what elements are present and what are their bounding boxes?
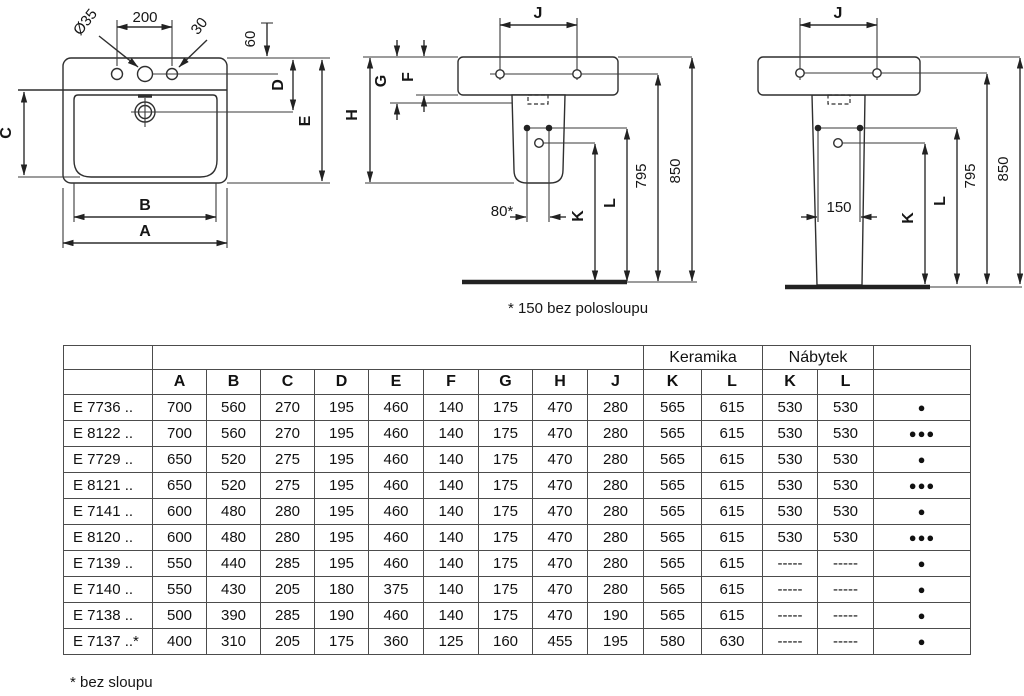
dimension-value-cell: 195 — [315, 551, 369, 577]
dimension-value-cell: 565 — [644, 499, 702, 525]
dim-A: A — [139, 223, 151, 240]
column-header-G-6: G — [479, 370, 533, 395]
dim-D: D — [270, 79, 287, 91]
mounting-hole — [573, 70, 581, 78]
fixing-point — [546, 125, 553, 132]
availability-dots-cell: ● — [874, 499, 971, 525]
dimension-value-cell: 470 — [533, 551, 588, 577]
column-header-row: ABCDEFGHJKLKL — [64, 370, 971, 395]
dimension-value-cell: 530 — [818, 421, 874, 447]
empty-header-cell — [153, 346, 644, 370]
dimension-value-cell: 560 — [207, 421, 261, 447]
dimension-value-cell: 615 — [702, 473, 763, 499]
column-header-K-11: K — [763, 370, 818, 395]
column-header-L-12: L — [818, 370, 874, 395]
dimension-value-cell: 560 — [207, 395, 261, 421]
dimension-value-cell: 550 — [153, 577, 207, 603]
dimension-value-cell: 360 — [369, 629, 424, 655]
dimension-value-cell: 195 — [315, 395, 369, 421]
mounting-hole — [873, 69, 881, 77]
fixing-point — [815, 125, 822, 132]
column-header-B-1: B — [207, 370, 261, 395]
pedestal — [812, 95, 865, 285]
dimension-value-cell: ----- — [818, 551, 874, 577]
dimension-value-cell: 470 — [533, 603, 588, 629]
dim-60: 60 — [242, 31, 259, 48]
dimension-value-cell: 195 — [315, 473, 369, 499]
dim-80: 80* — [491, 203, 514, 220]
dimension-value-cell: 615 — [702, 603, 763, 629]
dimension-value-cell: 205 — [261, 629, 315, 655]
dimension-value-cell: 140 — [424, 551, 479, 577]
dimension-value-cell: 520 — [207, 473, 261, 499]
dimension-value-cell: 470 — [533, 447, 588, 473]
dimension-value-cell: 615 — [702, 499, 763, 525]
side-view-pedestal-diagram: J 150 K L 795 850 — [700, 0, 1024, 300]
dimension-value-cell: 480 — [207, 499, 261, 525]
dimension-value-cell: 280 — [588, 473, 644, 499]
dimension-value-cell: 565 — [644, 447, 702, 473]
dimension-value-cell: 530 — [763, 395, 818, 421]
dimension-value-cell: 470 — [533, 421, 588, 447]
dimension-value-cell: 175 — [479, 551, 533, 577]
dimension-value-cell: 140 — [424, 577, 479, 603]
dimension-value-cell: 530 — [763, 473, 818, 499]
keramika-group-header: Keramika — [644, 346, 763, 370]
dimension-value-cell: 470 — [533, 473, 588, 499]
dimension-value-cell: 140 — [424, 525, 479, 551]
model-number-cell: E 7141 .. — [64, 499, 153, 525]
nabytek-group-header: Nábytek — [763, 346, 874, 370]
dimension-value-cell: ----- — [763, 551, 818, 577]
dim-K: K — [570, 210, 587, 222]
dimension-value-cell: 140 — [424, 447, 479, 473]
mounting-hole — [496, 70, 504, 78]
dimension-value-cell: 175 — [315, 629, 369, 655]
dimension-value-cell: 530 — [818, 473, 874, 499]
fixing-point — [524, 125, 531, 132]
dimension-value-cell: 600 — [153, 525, 207, 551]
fixing-point — [857, 125, 864, 132]
dimension-value-cell: 470 — [533, 525, 588, 551]
dim-150: 150 — [826, 199, 851, 216]
dimension-table: Keramika Nábytek ABCDEFGHJKLKL E 7736 ..… — [63, 345, 971, 655]
column-header-D-3: D — [315, 370, 369, 395]
table-row: E 7137 ..*400310205175360125160455195580… — [64, 629, 971, 655]
dimension-value-cell: ----- — [763, 629, 818, 655]
table-row: E 8120 ..6004802801954601401754702805656… — [64, 525, 971, 551]
dimension-value-cell: 125 — [424, 629, 479, 655]
dimension-value-cell: 530 — [763, 525, 818, 551]
dimension-value-cell: 530 — [818, 525, 874, 551]
dimension-value-cell: 565 — [644, 577, 702, 603]
dimension-value-cell: 700 — [153, 421, 207, 447]
dim-30: 30 — [188, 14, 212, 38]
dimension-value-cell: 565 — [644, 551, 702, 577]
dimension-value-cell: 275 — [261, 447, 315, 473]
dimension-value-cell: 480 — [207, 525, 261, 551]
empty-header-cell — [64, 370, 153, 395]
tap-hole-center — [138, 67, 153, 82]
dimension-value-cell: 615 — [702, 447, 763, 473]
empty-header-cell — [874, 346, 971, 370]
spec-table-body: E 7736 ..7005602701954601401754702805656… — [64, 395, 971, 655]
dimension-value-cell: ----- — [763, 603, 818, 629]
dimension-value-cell: 175 — [479, 525, 533, 551]
dimension-value-cell: 140 — [424, 499, 479, 525]
dimension-value-cell: 195 — [588, 629, 644, 655]
dimension-value-cell: 285 — [261, 603, 315, 629]
dimension-value-cell: 375 — [369, 577, 424, 603]
dimension-value-cell: 630 — [702, 629, 763, 655]
dim-L: L — [602, 198, 619, 208]
dimension-value-cell: 205 — [261, 577, 315, 603]
availability-dots-cell: ● — [874, 395, 971, 421]
column-header-H-7: H — [533, 370, 588, 395]
dimension-value-cell: 400 — [153, 629, 207, 655]
dimension-value-cell: 270 — [261, 421, 315, 447]
dim-dia35: Ø35 — [70, 6, 101, 39]
dim-850: 850 — [667, 158, 684, 183]
dim-C: C — [0, 127, 15, 139]
availability-dots-cell: ● — [874, 551, 971, 577]
dimension-value-cell: 190 — [588, 603, 644, 629]
dimension-value-cell: 460 — [369, 499, 424, 525]
dimension-value-cell: 310 — [207, 629, 261, 655]
dimension-value-cell: 520 — [207, 447, 261, 473]
dimension-value-cell: 615 — [702, 577, 763, 603]
dimension-value-cell: 615 — [702, 395, 763, 421]
dimension-value-cell: 280 — [261, 525, 315, 551]
dimension-value-cell: 190 — [315, 603, 369, 629]
washbasin-spec-sheet: 200 Ø35 30 60 D E C B A — [0, 0, 1024, 696]
table-row: E 7729 ..6505202751954601401754702805656… — [64, 447, 971, 473]
dim-G: G — [373, 75, 390, 87]
tap-hole-left — [112, 69, 123, 80]
dimension-value-cell: 430 — [207, 577, 261, 603]
column-header-J-8: J — [588, 370, 644, 395]
dimension-value-cell: 175 — [479, 395, 533, 421]
dim-795: 795 — [962, 163, 979, 188]
dimension-value-cell: 700 — [153, 395, 207, 421]
dimension-value-cell: 175 — [479, 421, 533, 447]
dimension-value-cell: 275 — [261, 473, 315, 499]
dimension-value-cell: 650 — [153, 473, 207, 499]
model-number-cell: E 7736 .. — [64, 395, 153, 421]
dimension-value-cell: 175 — [479, 577, 533, 603]
dimension-value-cell: 470 — [533, 395, 588, 421]
dimension-value-cell: 530 — [763, 447, 818, 473]
dimension-value-cell: 470 — [533, 499, 588, 525]
dimension-value-cell: 195 — [315, 421, 369, 447]
dimension-value-cell: 460 — [369, 447, 424, 473]
front-view-diagram: 200 Ø35 30 60 D E C B A — [0, 0, 340, 262]
dimension-value-cell: 530 — [818, 447, 874, 473]
dimension-value-cell: 195 — [315, 447, 369, 473]
dimension-value-cell: 455 — [533, 629, 588, 655]
dim-L: L — [932, 196, 949, 206]
dim-795: 795 — [633, 163, 650, 188]
dim-J: J — [834, 5, 843, 22]
dimension-value-cell: 280 — [261, 499, 315, 525]
availability-dots-cell: ●●● — [874, 473, 971, 499]
availability-dots-cell: ● — [874, 577, 971, 603]
table-row: E 7140 ..5504302051803751401754702805656… — [64, 577, 971, 603]
dimension-value-cell: 175 — [479, 473, 533, 499]
dimension-value-cell: 565 — [644, 525, 702, 551]
table-row: E 8121 ..6505202751954601401754702805656… — [64, 473, 971, 499]
dimension-value-cell: 460 — [369, 525, 424, 551]
dimension-value-cell: 460 — [369, 473, 424, 499]
dimension-value-cell: 140 — [424, 421, 479, 447]
dimension-value-cell: 650 — [153, 447, 207, 473]
model-number-cell: E 7138 .. — [64, 603, 153, 629]
dim-J: J — [534, 5, 543, 22]
outlet-point — [535, 139, 544, 148]
empty-header-cell — [64, 346, 153, 370]
model-number-cell: E 8120 .. — [64, 525, 153, 551]
dimension-value-cell: 280 — [588, 499, 644, 525]
dimension-value-cell: 470 — [533, 577, 588, 603]
dimension-value-cell: ----- — [818, 577, 874, 603]
model-number-cell: E 8121 .. — [64, 473, 153, 499]
column-header-A-0: A — [153, 370, 207, 395]
group-header-row: Keramika Nábytek — [64, 346, 971, 370]
dimension-value-cell: 615 — [702, 525, 763, 551]
footnote: * bez sloupu — [70, 674, 153, 691]
dim-H: H — [344, 109, 361, 121]
half-pedestal-note: * 150 bez polosloupu — [462, 300, 694, 317]
dimension-value-cell: 460 — [369, 603, 424, 629]
model-number-cell: E 7139 .. — [64, 551, 153, 577]
dimension-value-cell: 615 — [702, 421, 763, 447]
dimension-value-cell: 565 — [644, 395, 702, 421]
dimension-value-cell: 280 — [588, 421, 644, 447]
dimension-value-cell: 530 — [763, 421, 818, 447]
dimension-value-cell: 280 — [588, 525, 644, 551]
dimension-value-cell: 270 — [261, 395, 315, 421]
dimension-value-cell: 160 — [479, 629, 533, 655]
column-header-E-4: E — [369, 370, 424, 395]
availability-dots-cell: ●●● — [874, 525, 971, 551]
dimension-value-cell: 140 — [424, 603, 479, 629]
dimension-value-cell: 580 — [644, 629, 702, 655]
table-row: E 7139 ..5504402851954601401754702805656… — [64, 551, 971, 577]
column-header-C-2: C — [261, 370, 315, 395]
dimension-value-cell: 140 — [424, 473, 479, 499]
dimension-value-cell: 500 — [153, 603, 207, 629]
dimension-value-cell: 565 — [644, 473, 702, 499]
dimension-value-cell: 460 — [369, 421, 424, 447]
dimension-value-cell: 195 — [315, 499, 369, 525]
dimension-value-cell: 530 — [763, 499, 818, 525]
outlet-point — [834, 139, 843, 148]
side-view-half-pedestal-diagram: J G F H 80* K L 795 850 — [340, 0, 700, 330]
dimension-value-cell: ----- — [818, 629, 874, 655]
dimension-value-cell: 280 — [588, 551, 644, 577]
dim-K: K — [900, 212, 917, 224]
availability-dots-cell: ● — [874, 603, 971, 629]
dim-850: 850 — [995, 156, 1012, 181]
availability-dots-cell: ●●● — [874, 421, 971, 447]
column-header-L-10: L — [702, 370, 763, 395]
dimension-value-cell: 565 — [644, 603, 702, 629]
dimension-value-cell: 140 — [424, 395, 479, 421]
dimension-value-cell: 615 — [702, 551, 763, 577]
dimension-value-cell: ----- — [818, 603, 874, 629]
column-header-F-5: F — [424, 370, 479, 395]
dimension-value-cell: 285 — [261, 551, 315, 577]
dimension-value-cell: 600 — [153, 499, 207, 525]
table-row: E 7141 ..6004802801954601401754702805656… — [64, 499, 971, 525]
model-number-cell: E 7140 .. — [64, 577, 153, 603]
table-row: E 7138 ..5003902851904601401754701905656… — [64, 603, 971, 629]
dimension-value-cell: 175 — [479, 603, 533, 629]
model-number-cell: E 7137 ..* — [64, 629, 153, 655]
basin-side-outline — [758, 57, 920, 95]
dimension-value-cell: ----- — [763, 577, 818, 603]
dimension-value-cell: 280 — [588, 447, 644, 473]
dim-E: E — [297, 115, 314, 126]
dimension-value-cell: 565 — [644, 421, 702, 447]
dimension-value-cell: 280 — [588, 577, 644, 603]
dimension-value-cell: 530 — [818, 395, 874, 421]
dimension-value-cell: 280 — [588, 395, 644, 421]
dimension-value-cell: 390 — [207, 603, 261, 629]
dim-200: 200 — [132, 9, 157, 26]
basin-side-outline — [458, 57, 618, 95]
dimension-value-cell: 175 — [479, 499, 533, 525]
dim-B: B — [139, 197, 151, 214]
dimension-value-cell: 530 — [818, 499, 874, 525]
dimension-value-cell: 175 — [479, 447, 533, 473]
empty-header-cell — [874, 370, 971, 395]
availability-dots-cell: ● — [874, 447, 971, 473]
dim-F: F — [400, 72, 417, 82]
dimension-value-cell: 180 — [315, 577, 369, 603]
column-header-K-9: K — [644, 370, 702, 395]
table-row: E 7736 ..7005602701954601401754702805656… — [64, 395, 971, 421]
dimension-value-cell: 460 — [369, 551, 424, 577]
mounting-hole — [796, 69, 804, 77]
model-number-cell: E 8122 .. — [64, 421, 153, 447]
model-number-cell: E 7729 .. — [64, 447, 153, 473]
dimension-value-cell: 550 — [153, 551, 207, 577]
dimension-value-cell: 440 — [207, 551, 261, 577]
availability-dots-cell: ● — [874, 629, 971, 655]
dimension-value-cell: 460 — [369, 395, 424, 421]
table-row: E 8122 ..7005602701954601401754702805656… — [64, 421, 971, 447]
dimension-value-cell: 195 — [315, 525, 369, 551]
